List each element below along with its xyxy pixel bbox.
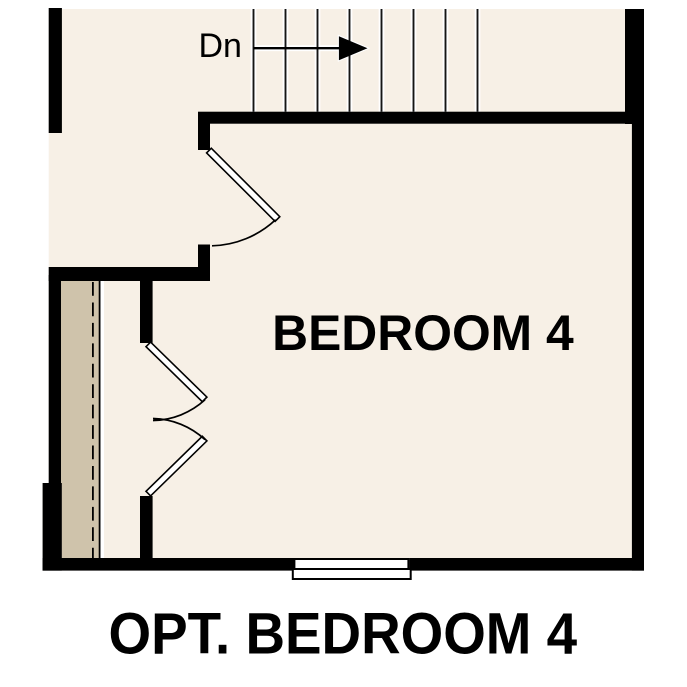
svg-text:BEDROOM 4: BEDROOM 4: [272, 305, 574, 361]
svg-text:Dn: Dn: [199, 27, 242, 65]
svg-text:OPT. BEDROOM 4: OPT. BEDROOM 4: [109, 601, 578, 666]
